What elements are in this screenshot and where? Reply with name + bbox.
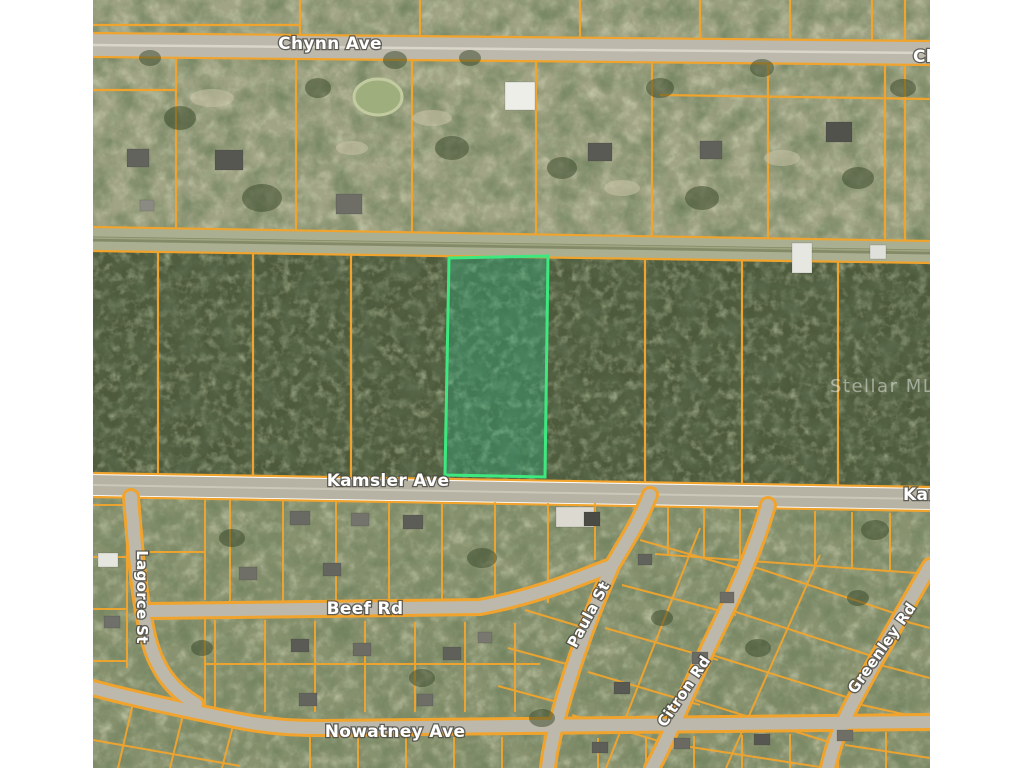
house xyxy=(403,515,423,529)
house xyxy=(584,512,600,526)
house xyxy=(792,243,812,273)
house xyxy=(351,513,369,526)
shed xyxy=(870,245,886,259)
street-label-lagorce-st: Lagorce St xyxy=(133,550,151,643)
street-label-kamsler-ave-partial: Kamsler Ave xyxy=(903,485,1024,505)
house xyxy=(353,643,371,656)
house xyxy=(98,553,118,567)
house xyxy=(754,734,770,745)
house xyxy=(239,567,257,580)
house xyxy=(104,616,120,628)
house xyxy=(299,693,317,706)
house xyxy=(614,682,630,694)
pond-ring xyxy=(354,79,402,115)
barn xyxy=(505,82,535,110)
house xyxy=(417,694,433,706)
house xyxy=(720,592,734,603)
street-label-beef-rd: Beef Rd xyxy=(327,599,404,619)
map-content: Chynn Ave Chynn Ave Kamsler Ave Kamsler … xyxy=(93,0,1024,768)
house xyxy=(674,738,690,749)
house xyxy=(700,141,722,159)
house xyxy=(443,647,461,660)
house xyxy=(837,730,853,741)
street-label-kamsler-ave: Kamsler Ave xyxy=(327,471,450,491)
listing-map-image: Chynn Ave Chynn Ave Kamsler Ave Kamsler … xyxy=(0,0,1024,768)
watermark-stellar-mls: Stellar MLS xyxy=(830,376,947,397)
house xyxy=(140,200,154,211)
house xyxy=(290,511,310,525)
house xyxy=(215,150,243,170)
house xyxy=(323,563,341,576)
house xyxy=(826,122,852,142)
house xyxy=(127,149,149,167)
aerial-map: Chynn Ave Chynn Ave Kamsler Ave Kamsler … xyxy=(0,0,1024,768)
house xyxy=(638,554,652,565)
house xyxy=(588,143,612,161)
street-label-chynn-ave-partial: Chynn Ave xyxy=(913,47,1017,67)
house xyxy=(478,632,492,643)
house xyxy=(336,194,362,214)
street-label-chynn-ave: Chynn Ave xyxy=(278,34,382,54)
house xyxy=(592,742,608,753)
subject-parcel-highlight xyxy=(445,256,548,477)
house xyxy=(291,639,309,652)
street-label-nowatney-ave: Nowatney Ave xyxy=(325,722,466,742)
